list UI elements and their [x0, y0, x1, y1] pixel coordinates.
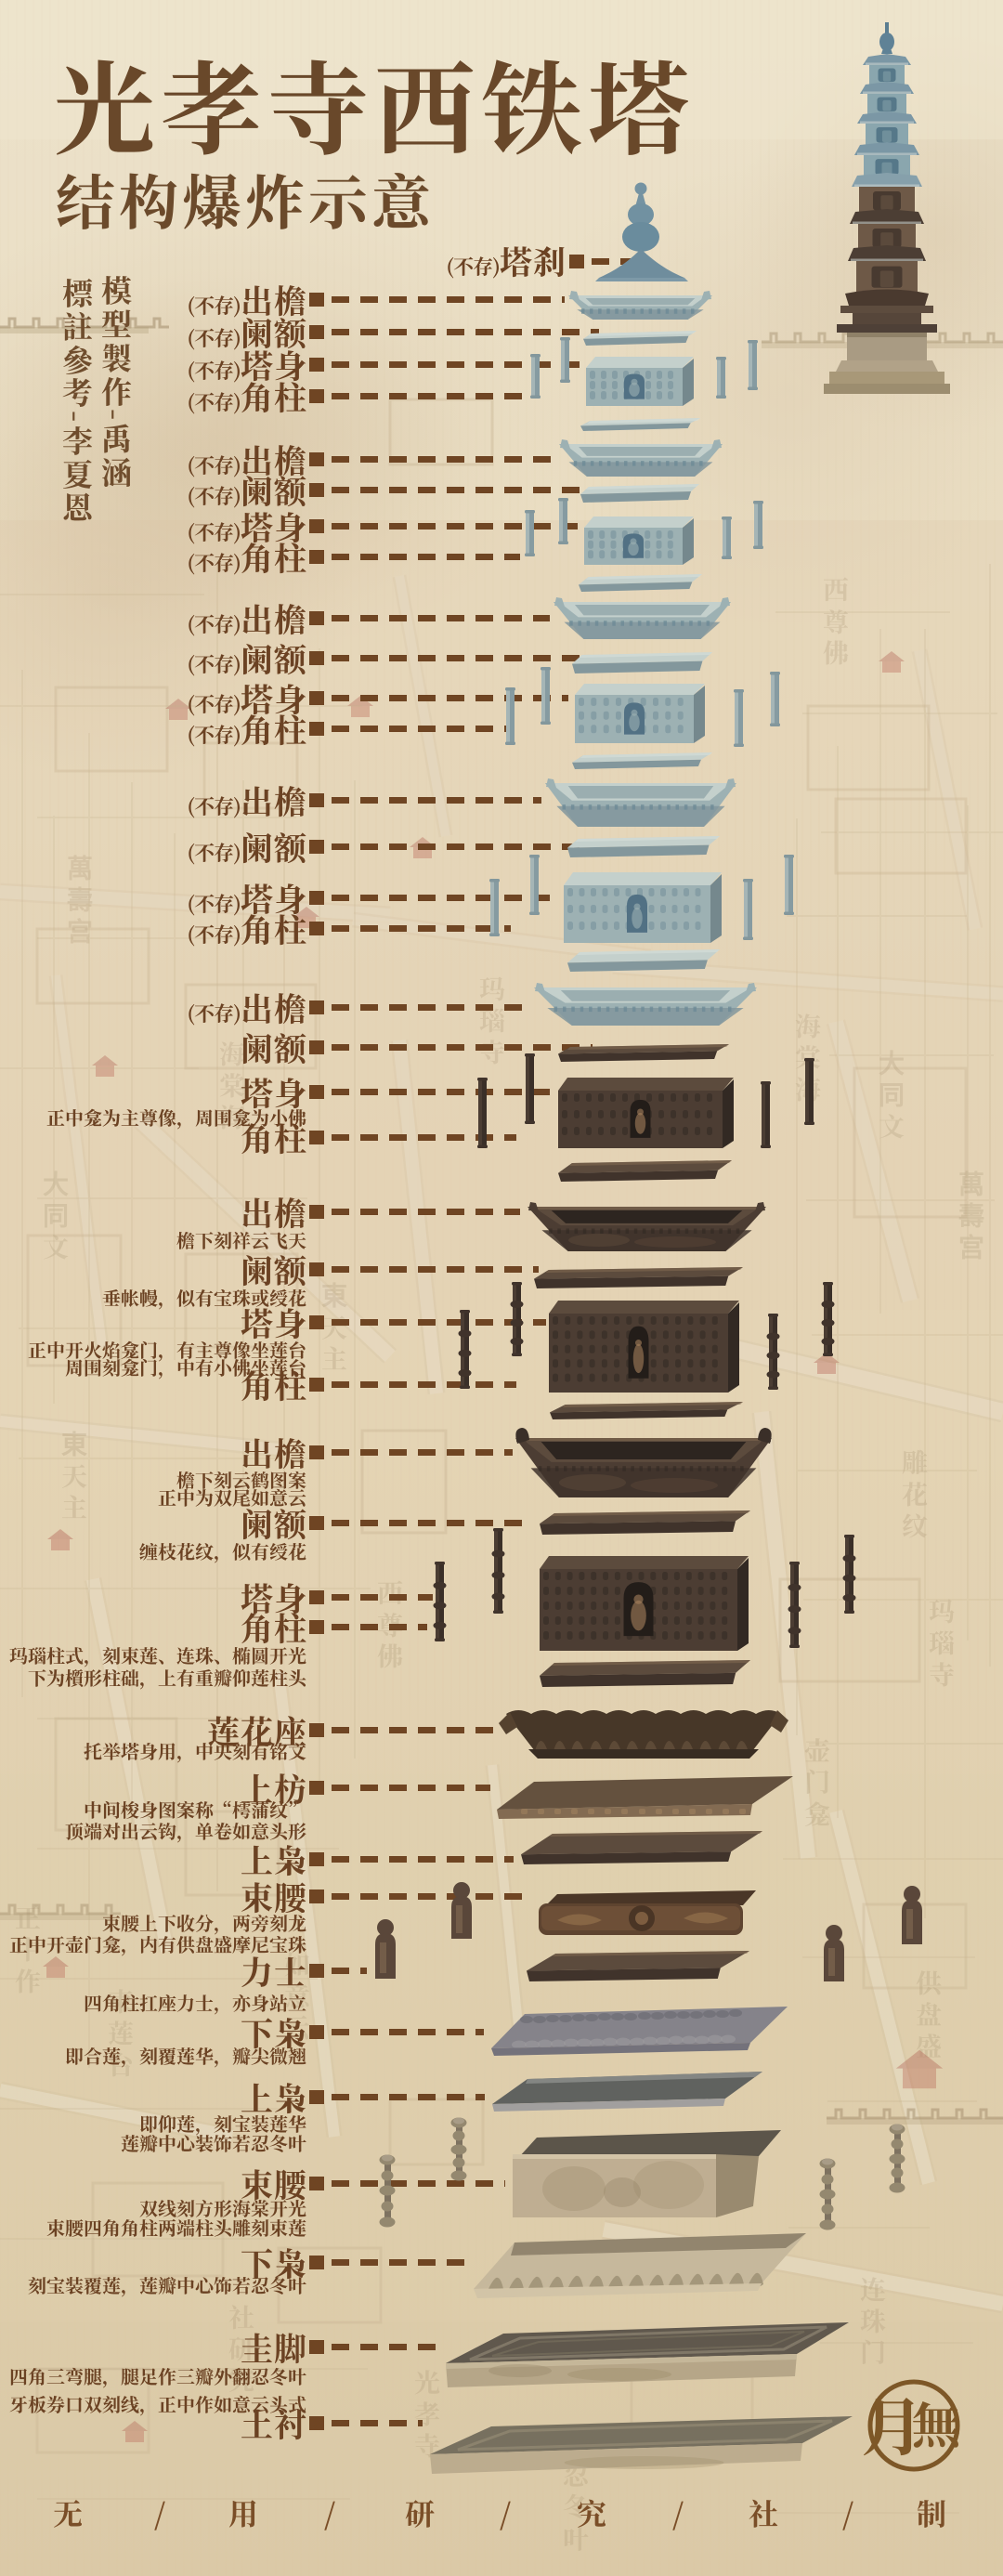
svg-text:無: 無: [912, 2387, 964, 2458]
